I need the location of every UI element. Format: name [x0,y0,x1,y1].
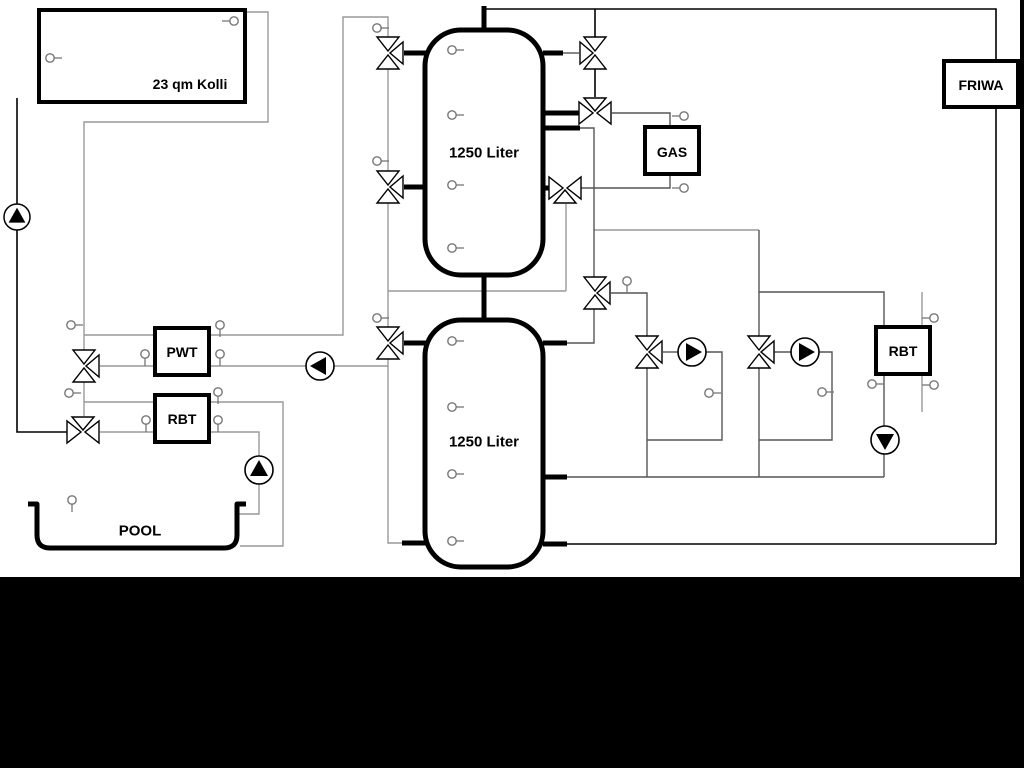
pwt-label: PWT [166,344,198,360]
pump-icon [4,204,30,230]
gas-label: GAS [657,144,687,160]
rbt-pool-label: RBT [168,411,197,427]
pump-icon [791,338,819,366]
pool-label: POOL [119,523,162,540]
rbt-right-label: RBT [889,343,918,359]
pump-icon [306,352,334,380]
tank-top-label: 1250 Liter [449,145,519,162]
collector-label: 23 qm Kolli [153,76,228,92]
schematic-canvas: 23 qm Kolli 1250 Liter 1250 Liter GAS FR… [0,0,1024,768]
pump-icon [245,456,273,484]
pump-icon [871,426,899,454]
tank-bottom-label: 1250 Liter [449,434,519,451]
desktop-background: 23 qm Kolli 1250 Liter 1250 Liter GAS FR… [0,0,1024,768]
friwa-label: FRIWA [958,77,1003,93]
pump-icon [678,338,706,366]
